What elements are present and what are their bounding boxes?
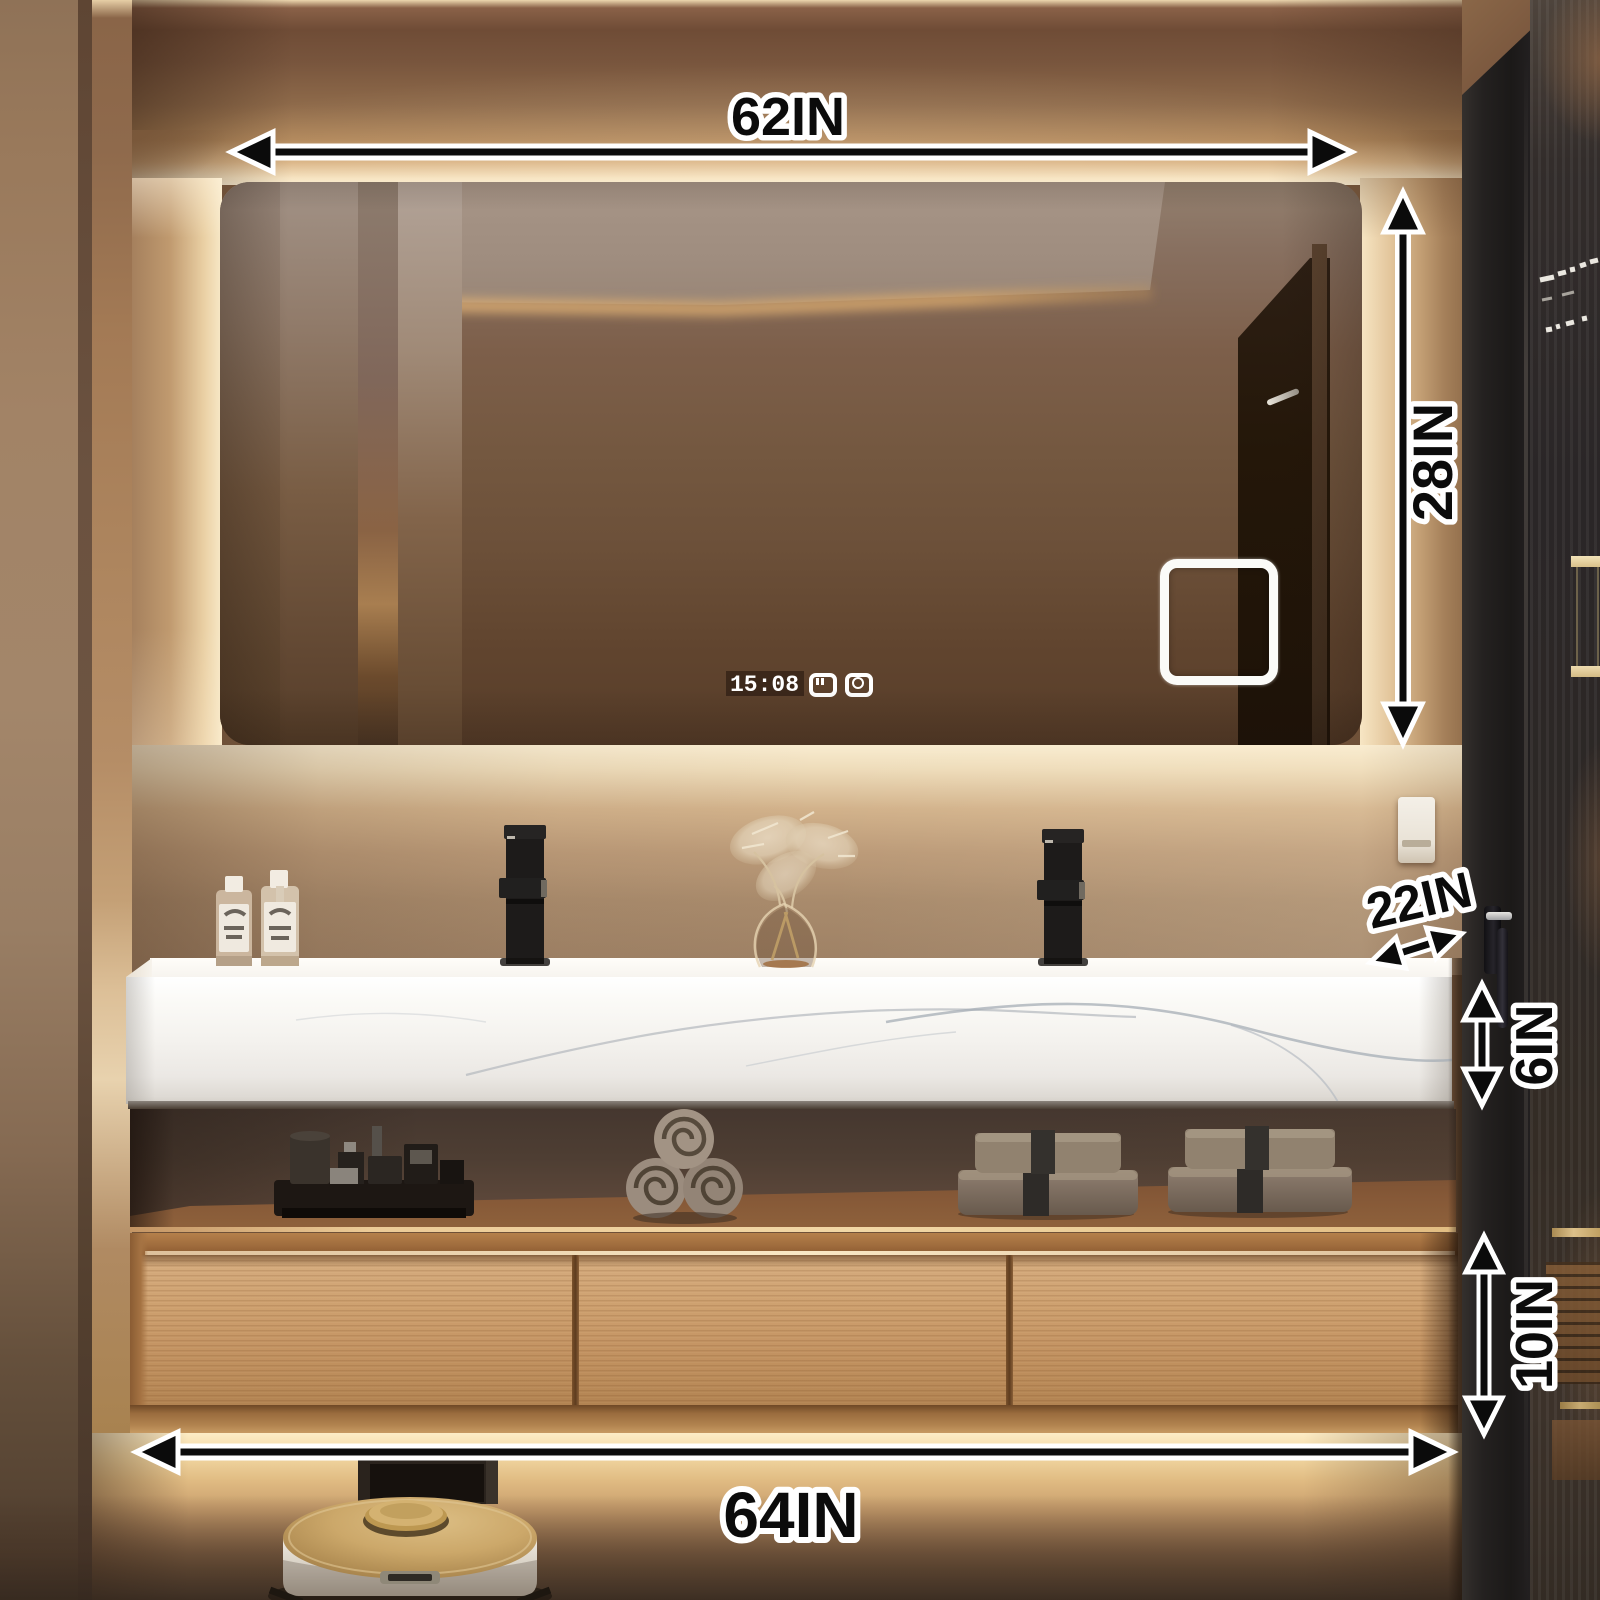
svg-text:62IN: 62IN <box>731 87 845 147</box>
svg-text:22IN: 22IN <box>1361 861 1477 939</box>
svg-text:28IN: 28IN <box>1401 403 1464 521</box>
svg-text:6IN: 6IN <box>1506 1005 1564 1086</box>
svg-text:64IN: 64IN <box>723 1479 858 1551</box>
svg-text:10IN: 10IN <box>1506 1279 1564 1389</box>
